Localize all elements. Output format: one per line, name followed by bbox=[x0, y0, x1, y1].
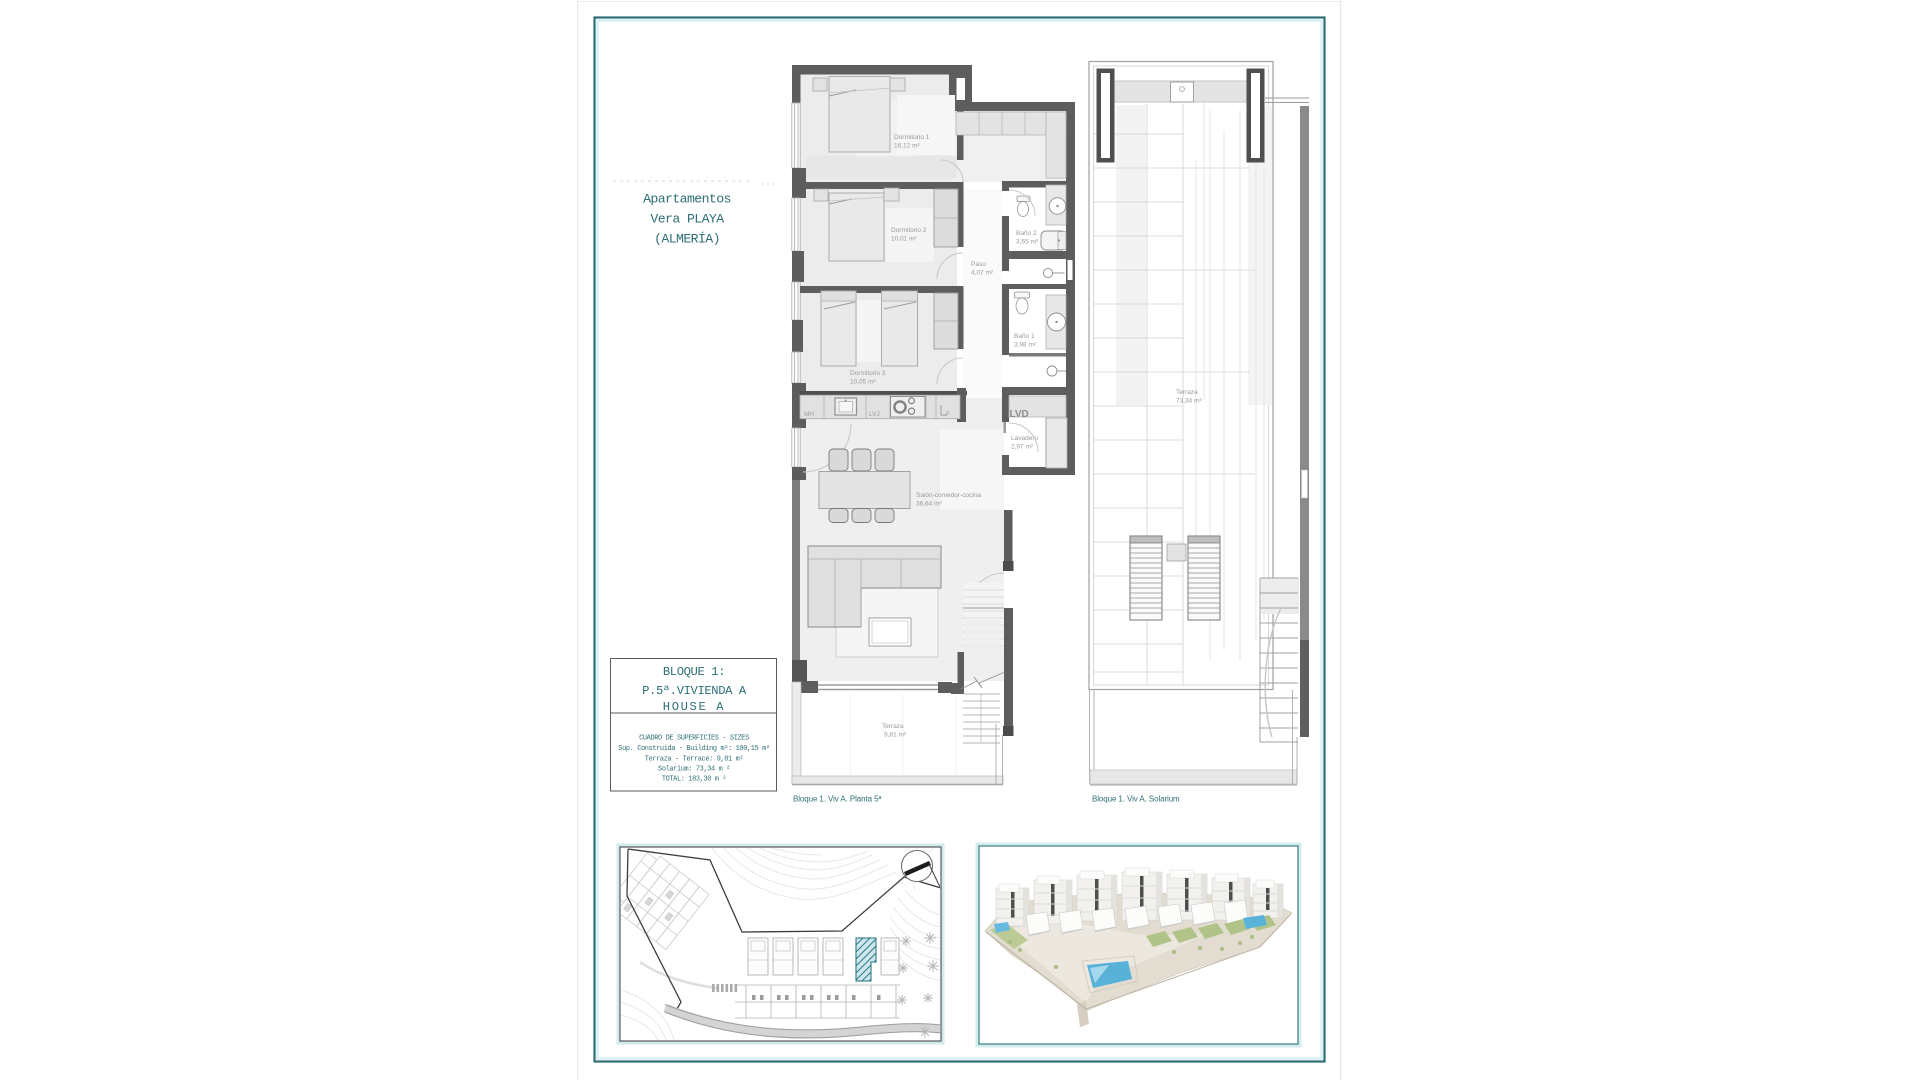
svg-text:Bloque 1. Viv A. Solarium: Bloque 1. Viv A. Solarium bbox=[1092, 795, 1180, 804]
svg-text:3,98 m²: 3,98 m² bbox=[1014, 342, 1037, 349]
svg-text:36,64 m²: 36,64 m² bbox=[916, 501, 942, 508]
svg-text:Baño 2: Baño 2 bbox=[1016, 230, 1037, 237]
svg-text:Baño 1: Baño 1 bbox=[1014, 333, 1035, 340]
svg-text:CUADRO DE SUPERFICIES - SIZES: CUADRO DE SUPERFICIES - SIZES bbox=[639, 735, 749, 743]
svg-text:Terraza: Terraza bbox=[882, 723, 904, 730]
svg-text:10,01 m²: 10,01 m² bbox=[891, 236, 917, 243]
svg-text:Paso: Paso bbox=[971, 261, 986, 268]
svg-text:LVJ: LVJ bbox=[869, 411, 880, 418]
svg-text:F: F bbox=[946, 411, 950, 418]
svg-text:4,07 m²: 4,07 m² bbox=[971, 270, 994, 277]
svg-text:3,65 m²: 3,65 m² bbox=[1016, 239, 1039, 246]
svg-text:Dormitorio 3: Dormitorio 3 bbox=[850, 370, 886, 377]
svg-text:9,81 m²: 9,81 m² bbox=[884, 732, 907, 739]
svg-text:BLOQUE 1:: BLOQUE 1: bbox=[663, 665, 725, 679]
svg-text:Terraza: Terraza bbox=[1176, 389, 1198, 396]
svg-text:Apartamentos: Apartamentos bbox=[643, 192, 731, 207]
svg-text:2,97 m²: 2,97 m² bbox=[1011, 444, 1034, 451]
svg-text:MH: MH bbox=[804, 411, 814, 418]
svg-text:Bloque 1. Viv A. Planta 5ª: Bloque 1. Viv A. Planta 5ª bbox=[793, 795, 881, 804]
svg-text:P.5ª.VIVIENDA A: P.5ª.VIVIENDA A bbox=[642, 684, 747, 698]
svg-text:Dormitorio 2: Dormitorio 2 bbox=[891, 227, 927, 234]
svg-text:73,34 m²: 73,34 m² bbox=[1176, 398, 1202, 405]
svg-text:16,12 m²: 16,12 m² bbox=[894, 143, 920, 150]
svg-text:Salón-comedor-cocina: Salón-comedor-cocina bbox=[916, 492, 981, 499]
svg-text:TOTAL: 183,30 m ²: TOTAL: 183,30 m ² bbox=[662, 776, 727, 784]
svg-text:Dormitorio 1: Dormitorio 1 bbox=[894, 134, 930, 141]
svg-text:Sup. Construida - Building m²: Sup. Construida - Building m²: 100,15 m² bbox=[618, 745, 770, 753]
svg-text:Solarium: 73,34 m ²: Solarium: 73,34 m ² bbox=[658, 766, 730, 774]
svg-text:Terraza - Terrace: 9,81 m²: Terraza - Terrace: 9,81 m² bbox=[645, 756, 744, 764]
svg-text:HOUSE A: HOUSE A bbox=[663, 700, 725, 714]
svg-text:(ALMERÍA): (ALMERÍA) bbox=[654, 232, 720, 247]
svg-text:Vera PLAYA: Vera PLAYA bbox=[650, 212, 724, 227]
svg-text:10,05 m²: 10,05 m² bbox=[850, 379, 876, 386]
svg-text:LVD: LVD bbox=[1010, 409, 1029, 420]
